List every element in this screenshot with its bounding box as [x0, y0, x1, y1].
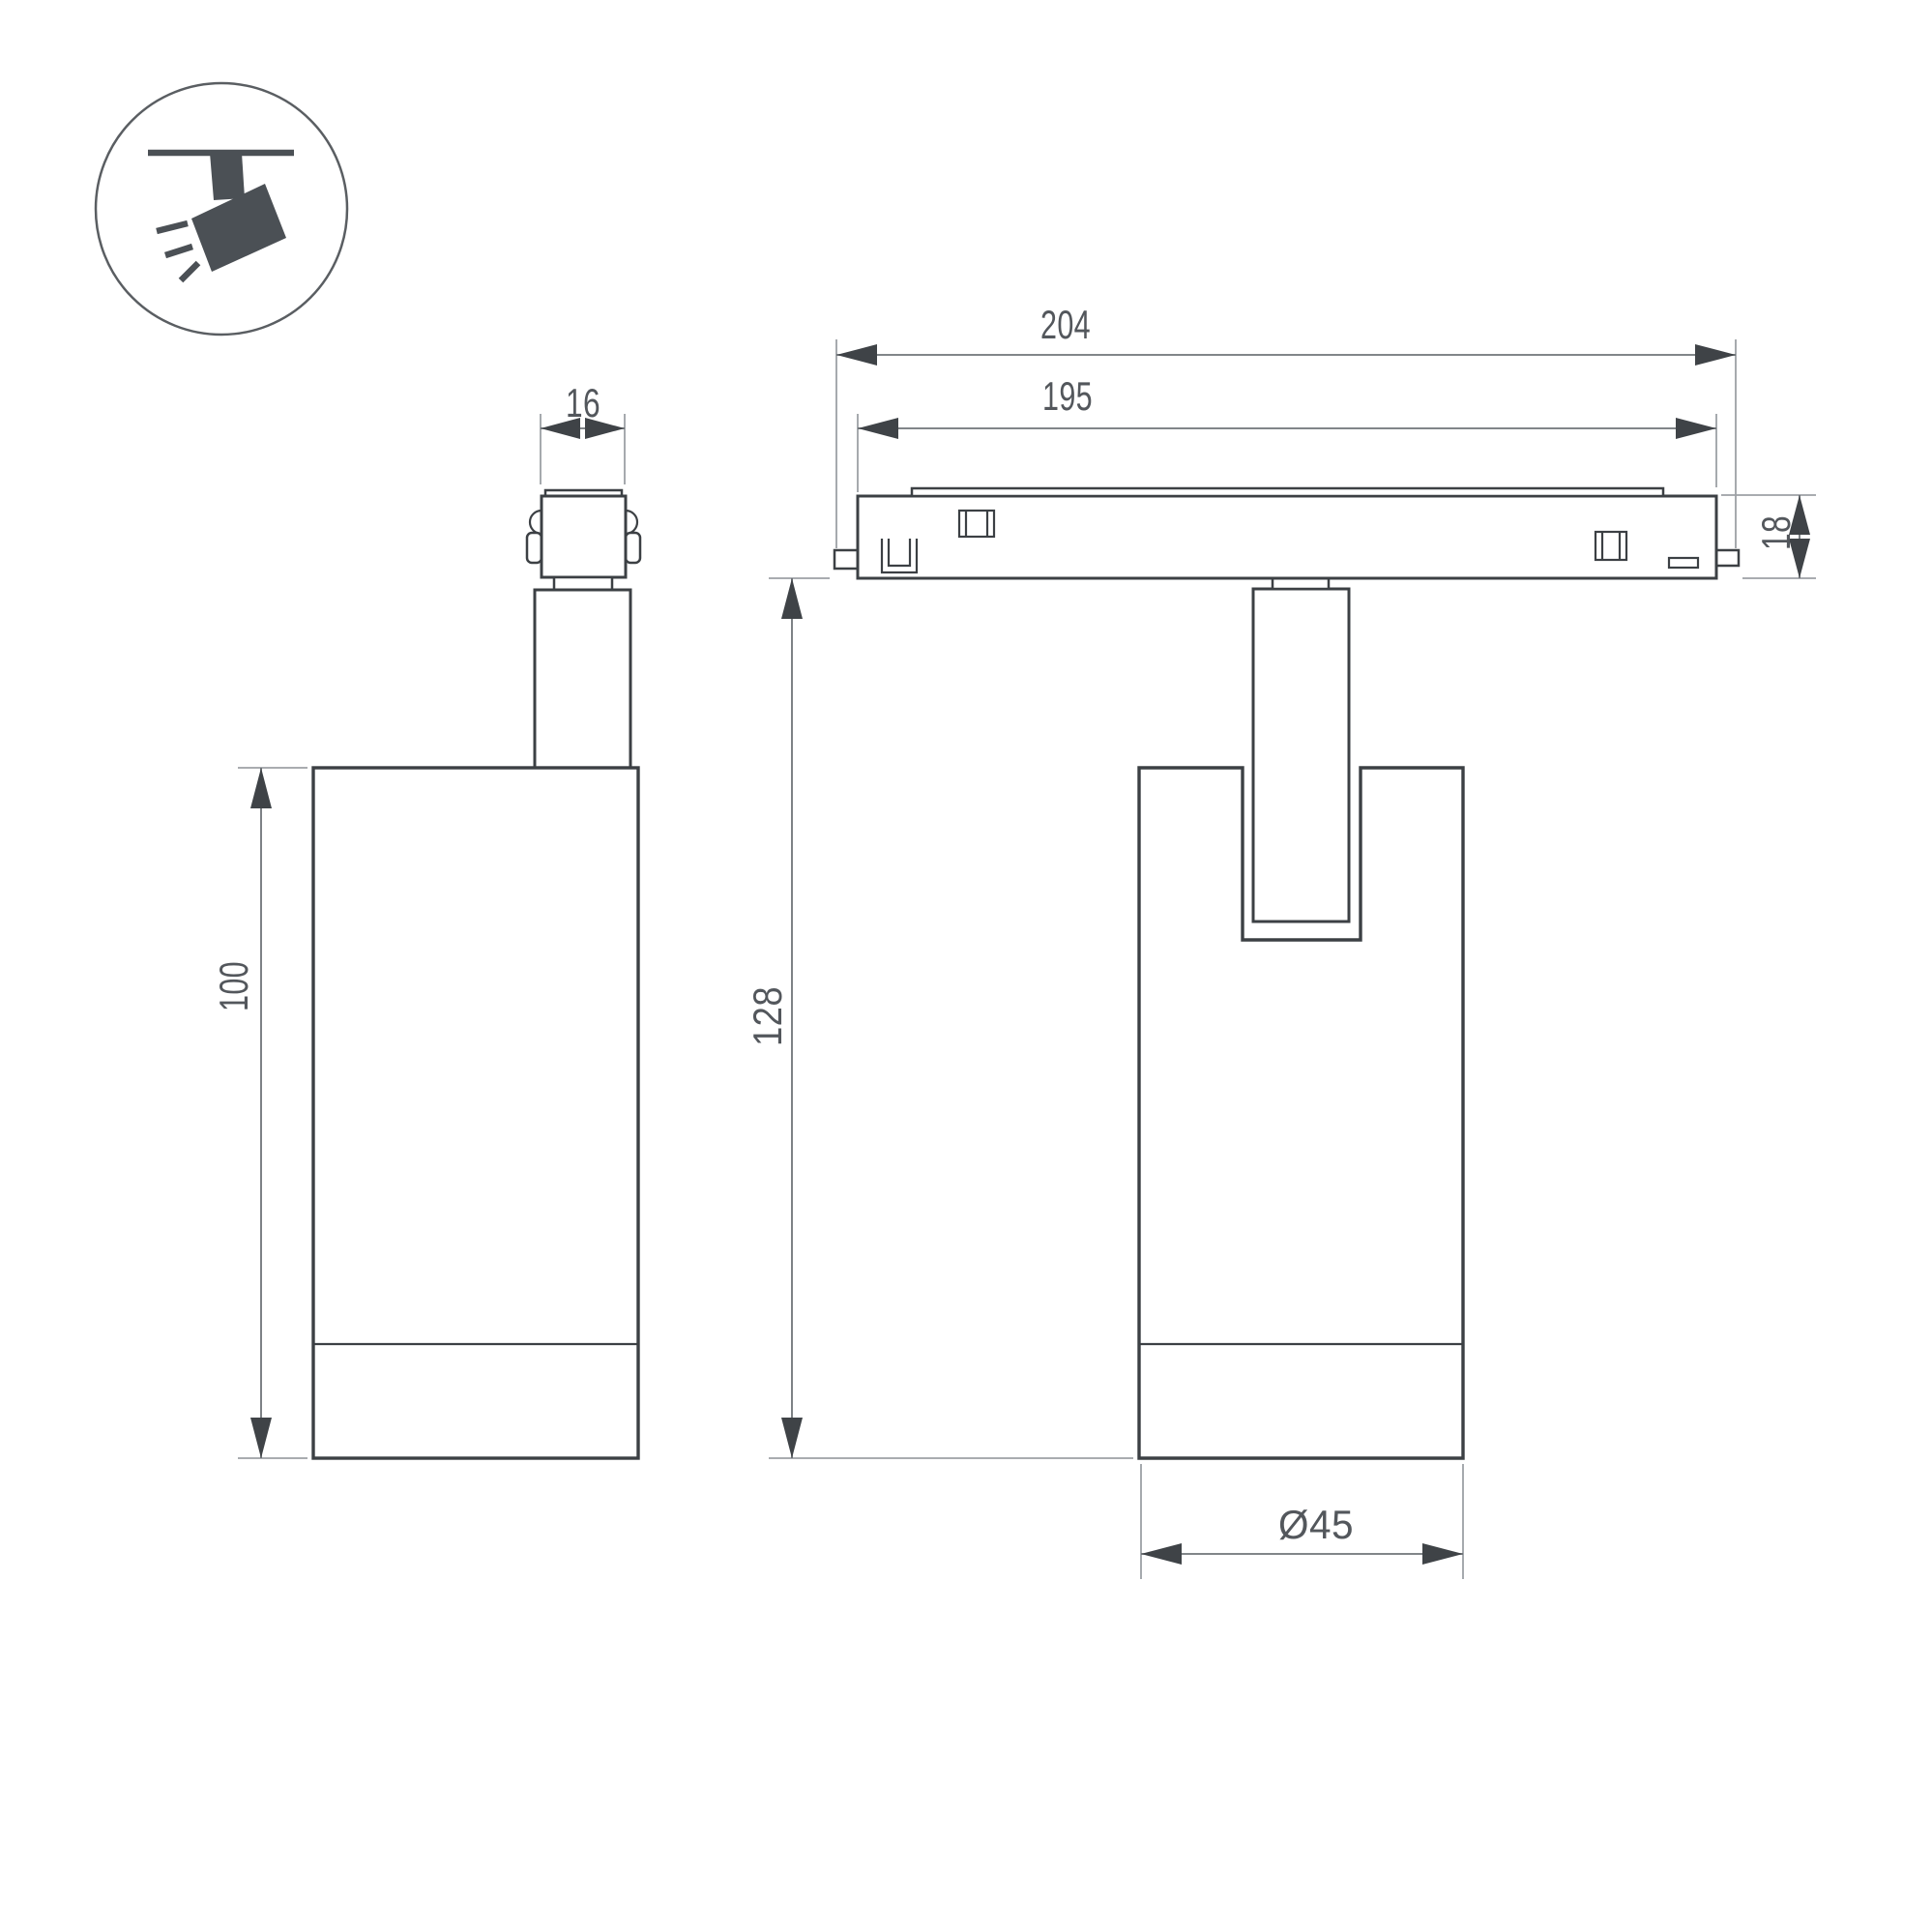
- track-top-rail: [912, 488, 1663, 496]
- front-stem: [1253, 589, 1349, 922]
- side-connector-ear-right: [626, 533, 640, 563]
- front-view: [834, 488, 1739, 1458]
- dim-arrow: [1422, 1543, 1463, 1565]
- dim-body-diameter: Ø45: [1141, 1464, 1463, 1579]
- side-connector-block: [542, 496, 626, 577]
- side-connector-ear-left: [527, 533, 542, 563]
- track-spotlight-icon: [96, 83, 347, 335]
- dim-label-body-diameter: Ø45: [1278, 1502, 1354, 1547]
- icon-stem: [210, 153, 245, 200]
- dim-label-overall-drop-height: 128: [745, 986, 790, 1046]
- dim-connector-width: 16: [541, 380, 625, 484]
- dim-overall-drop-height: 128: [745, 578, 1133, 1458]
- dim-track-visible-length: 195: [858, 373, 1716, 492]
- dimension-drawing: 16 204 195 18 100: [0, 0, 1932, 1932]
- dim-label-track-height: 18: [1753, 515, 1799, 550]
- dim-arrow: [781, 578, 803, 619]
- dim-arrow: [858, 418, 898, 439]
- dim-arrow: [1676, 418, 1716, 439]
- track-end-tab-left: [834, 550, 858, 569]
- dim-label-track-overall-length: 204: [1040, 302, 1091, 347]
- side-view: [313, 490, 640, 1458]
- dim-arrow: [836, 344, 877, 366]
- side-neck: [554, 577, 612, 590]
- side-connector-spring-right: [626, 511, 637, 534]
- dim-arrow: [781, 1418, 803, 1458]
- track-end-tab-right: [1716, 550, 1739, 566]
- dim-label-body-height: 100: [211, 961, 256, 1011]
- dim-label-track-visible-length: 195: [1042, 373, 1093, 419]
- side-connector-spring-left: [530, 511, 542, 534]
- dim-arrow: [1141, 1543, 1182, 1565]
- dim-arrow: [1695, 344, 1736, 366]
- side-stem: [535, 590, 630, 768]
- dim-body-height: 100: [211, 768, 307, 1458]
- dimension-drawing-page: 16 204 195 18 100: [0, 0, 1932, 1932]
- dim-label-connector-width: 16: [566, 380, 600, 425]
- dim-arrow: [250, 1418, 272, 1458]
- dim-arrow: [250, 768, 272, 808]
- side-body: [313, 768, 638, 1458]
